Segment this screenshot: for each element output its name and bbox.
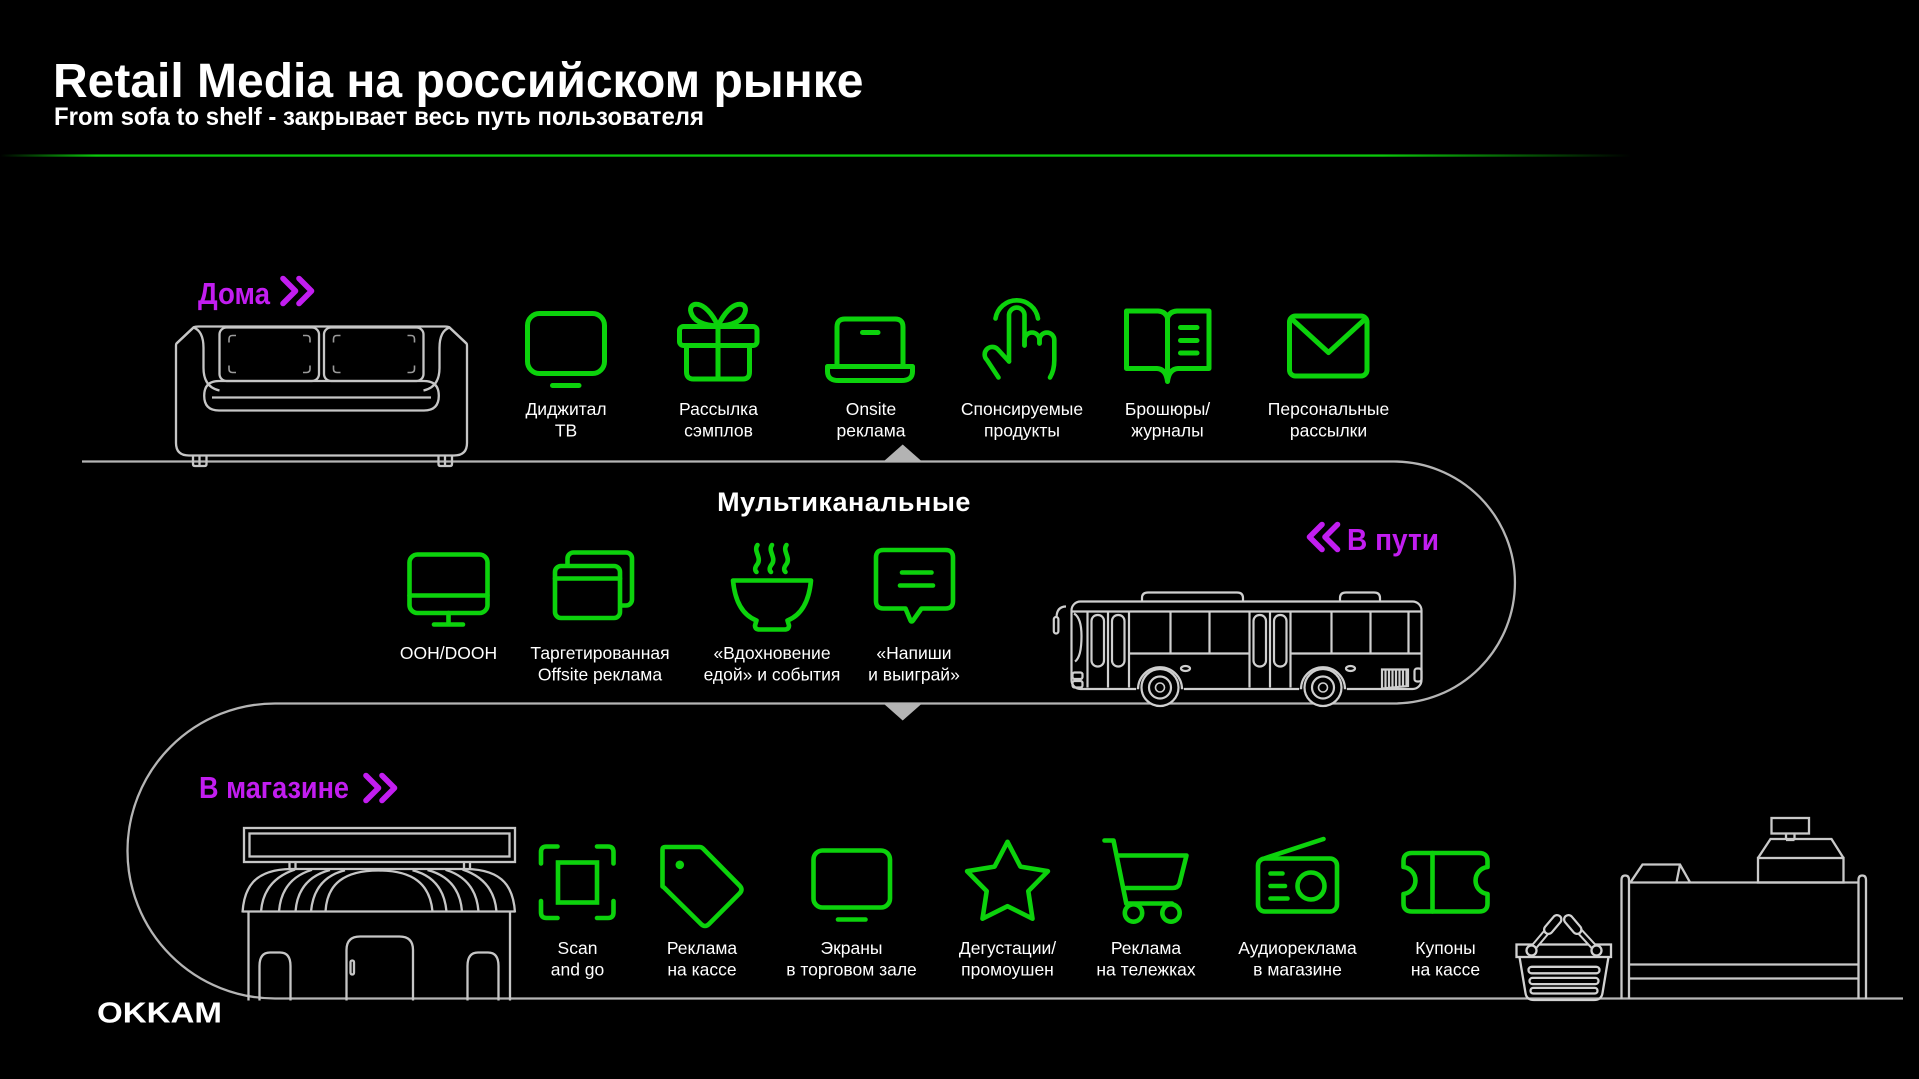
svg-text:Рекламана тележках: Рекламана тележках bbox=[1096, 938, 1195, 980]
svg-text:Купонына кассе: Купонына кассе bbox=[1411, 938, 1480, 980]
svg-text:Аудиорекламав магазине: Аудиорекламав магазине bbox=[1238, 938, 1357, 980]
svg-text:OOH/DOOH: OOH/DOOH bbox=[400, 643, 497, 663]
svg-text:OKKAM: OKKAM bbox=[97, 998, 222, 1030]
svg-text:Scanand go: Scanand go bbox=[551, 938, 605, 980]
svg-text:Рекламана кассе: Рекламана кассе bbox=[667, 938, 737, 980]
svg-text:Дегустации/промоушен: Дегустации/промоушен bbox=[959, 938, 1056, 980]
svg-text:Брошюры/журналы: Брошюры/журналы bbox=[1125, 399, 1210, 441]
svg-text:Рассылкасэмплов: Рассылкасэмплов bbox=[679, 399, 758, 441]
svg-text:Retail Media на российском рын: Retail Media на российском рынке bbox=[53, 55, 864, 108]
svg-text:«Вдохновениеедой» и события: «Вдохновениеедой» и события bbox=[704, 643, 841, 685]
svg-text:В пути: В пути bbox=[1347, 522, 1439, 557]
svg-text:Onsiteреклама: Onsiteреклама bbox=[836, 399, 905, 441]
svg-text:В магазине: В магазине bbox=[199, 770, 349, 805]
svg-text:Мультиканальные: Мультиканальные bbox=[717, 487, 971, 517]
svg-text:«Напишии выиграй»: «Напишии выиграй» bbox=[868, 643, 960, 685]
svg-text:From sofa to shelf - закрывает: From sofa to shelf - закрывает весь путь… bbox=[54, 103, 704, 131]
svg-text:Дома: Дома bbox=[198, 276, 271, 311]
svg-text:ТаргетированнаяOffsite реклам: ТаргетированнаяOffsite реклама bbox=[530, 643, 669, 685]
